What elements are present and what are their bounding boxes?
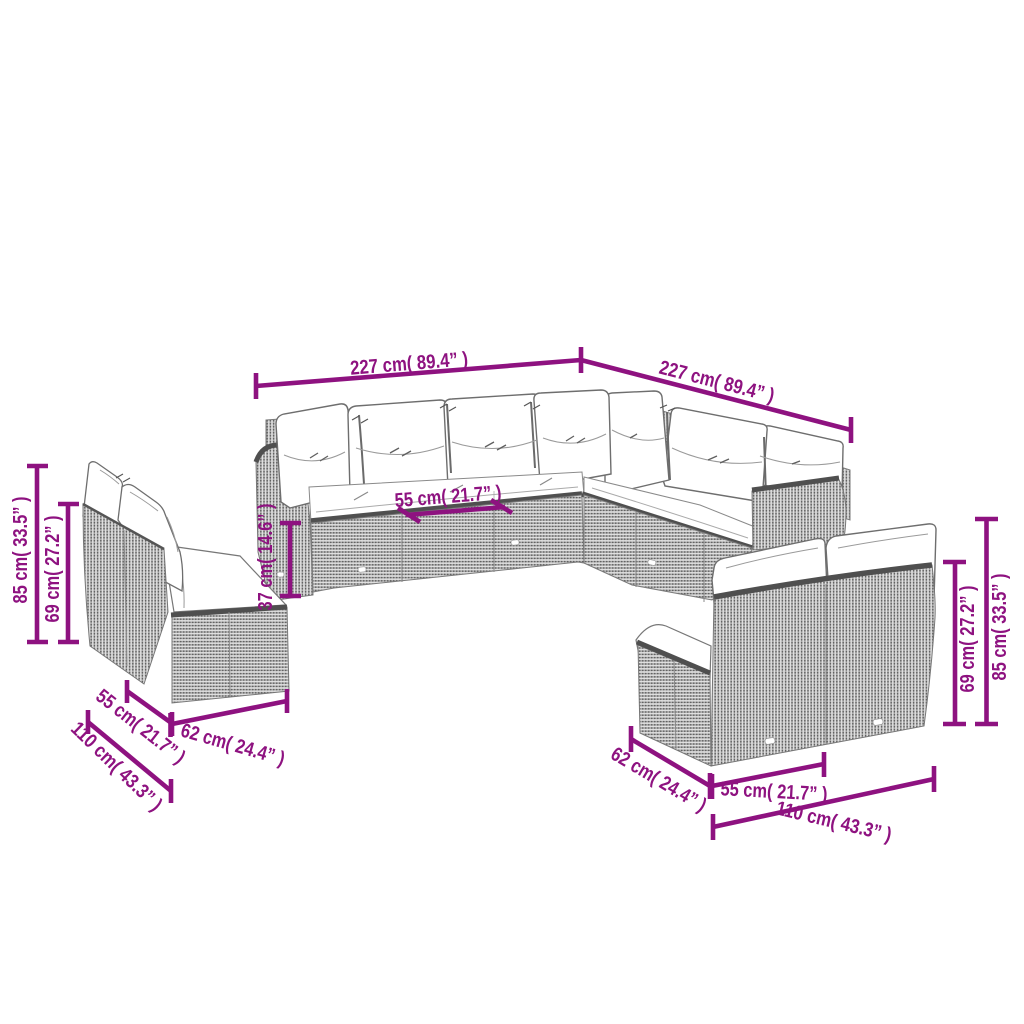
svg-text:69 cm( 27.2” ): 69 cm( 27.2” ) <box>42 516 64 623</box>
svg-text:85 cm( 33.5” ): 85 cm( 33.5” ) <box>989 574 1011 681</box>
svg-text:85 cm( 33.5” ): 85 cm( 33.5” ) <box>10 497 32 604</box>
svg-text:37 cm( 14.6” ): 37 cm( 14.6” ) <box>255 504 277 611</box>
svg-text:69 cm( 27.2” ): 69 cm( 27.2” ) <box>957 586 979 693</box>
